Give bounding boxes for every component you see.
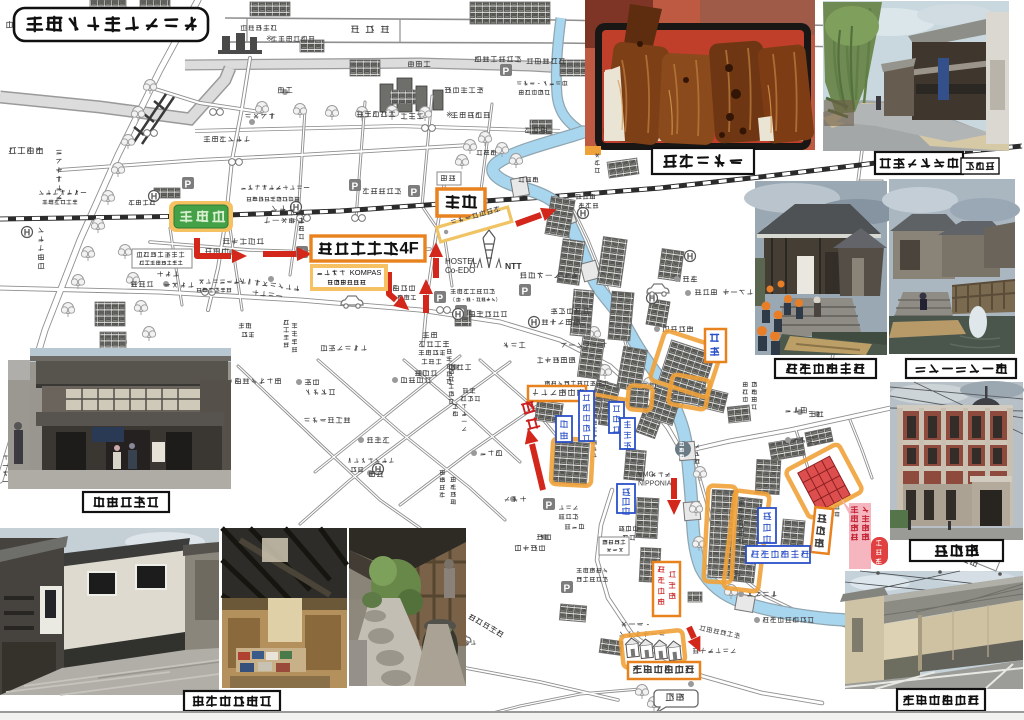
svg-text:H: H bbox=[580, 209, 587, 219]
svg-text:P: P bbox=[352, 182, 359, 193]
svg-text:※: ※ bbox=[446, 111, 453, 120]
svg-text:4F: 4F bbox=[400, 240, 419, 258]
svg-text:H: H bbox=[151, 192, 158, 202]
svg-text:P: P bbox=[503, 67, 510, 78]
svg-text:NTT: NTT bbox=[505, 261, 522, 271]
svg-text:P: P bbox=[185, 180, 192, 191]
svg-text:H: H bbox=[455, 310, 462, 320]
svg-text:P: P bbox=[522, 287, 529, 298]
svg-text:P: P bbox=[411, 188, 418, 199]
svg-text:P: P bbox=[437, 294, 444, 305]
svg-text:KOMPAS: KOMPAS bbox=[350, 268, 382, 277]
svg-text:H: H bbox=[687, 252, 694, 262]
svg-text:NIPPONIA: NIPPONIA bbox=[638, 481, 672, 488]
svg-text:※: ※ bbox=[266, 34, 272, 43]
svg-text:VMG: VMG bbox=[638, 472, 654, 479]
svg-text:P: P bbox=[546, 501, 553, 512]
svg-text:H: H bbox=[24, 228, 31, 238]
svg-text:H: H bbox=[293, 203, 300, 213]
svg-text:H: H bbox=[531, 318, 538, 328]
svg-text:P: P bbox=[564, 584, 571, 595]
